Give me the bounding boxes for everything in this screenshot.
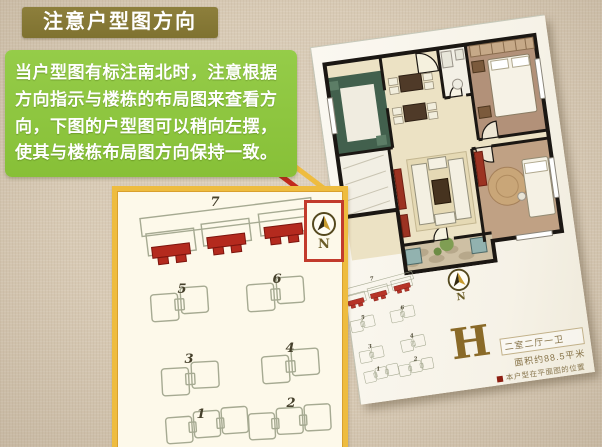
- building-number-6: 6: [272, 272, 281, 287]
- building-number-2: 2: [285, 396, 295, 411]
- description-line: 当户型图有标注南北时，注意根据: [15, 60, 287, 87]
- north-arrow-icon: [311, 211, 337, 237]
- planter: [405, 248, 422, 265]
- building-number-4: 4: [285, 341, 294, 356]
- page-title: 注意户型图方向: [22, 7, 218, 38]
- description-line: 使其与楼栋布局图方向保持一致。: [15, 140, 287, 167]
- legend-red-square-icon: [497, 375, 504, 382]
- unit-letter: H: [448, 319, 493, 366]
- floor-plan: [319, 28, 570, 283]
- floor-plan-sheet: N H 二室二厅一卫 面积约88.5平米 本户型在平面图的位置: [311, 15, 595, 404]
- north-compass-box: N: [304, 200, 344, 262]
- infographic-canvas: N H 二室二厅一卫 面积约88.5平米 本户型在平面图的位置: [0, 0, 602, 447]
- north-label: N: [318, 238, 330, 251]
- north-arrow-icon: [445, 266, 472, 293]
- description-box: 当户型图有标注南北时，注意根据 方向指示与楼栋的布局图来查看方 向，下图的户型图…: [5, 50, 297, 177]
- north-label: N: [456, 292, 466, 303]
- description-line: 向，下图的户型图可以稍向左摆，: [15, 114, 287, 141]
- site-plan-panel: 7 5 6 3 4 1 2 N: [112, 186, 348, 447]
- building-number-5: 5: [177, 282, 186, 297]
- building-number-3: 3: [184, 352, 193, 367]
- sheet-compass: N: [443, 266, 476, 305]
- highlighted-buildings: [151, 223, 305, 265]
- building-number-7: 7: [210, 195, 219, 210]
- description-line: 方向指示与楼栋的布局图来查看方: [15, 87, 287, 114]
- kitchen-appliance: [376, 135, 387, 146]
- kitchen-appliance: [329, 81, 339, 91]
- coffee-table: [432, 178, 451, 204]
- building-1: [165, 406, 249, 444]
- building-number-1: 1: [196, 407, 205, 422]
